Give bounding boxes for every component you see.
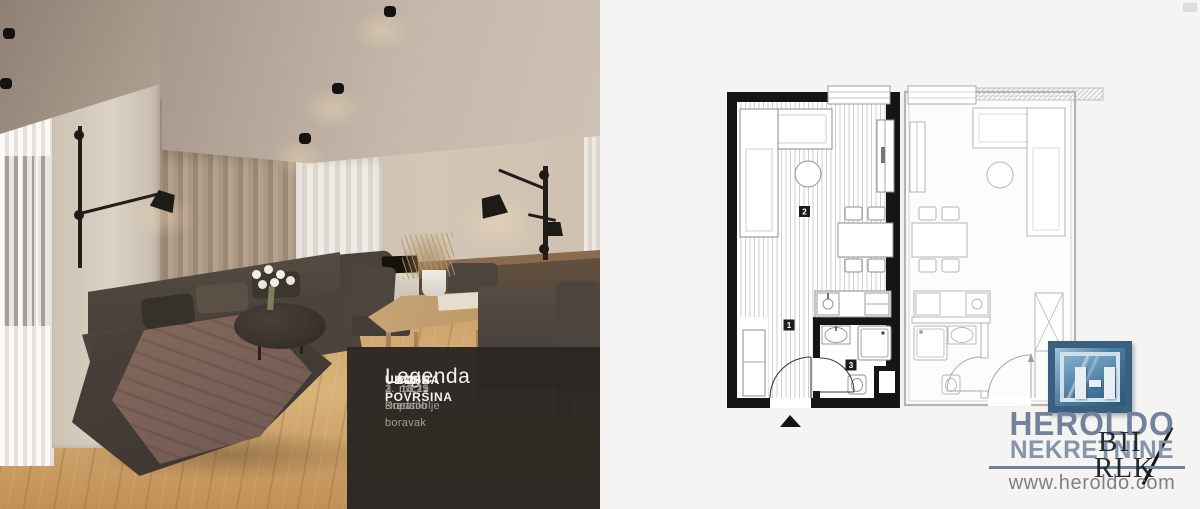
- logo-inner-frame: [1060, 352, 1120, 402]
- ceiling-spotlight: [299, 133, 311, 144]
- room-marker-2: 2: [799, 206, 810, 217]
- wall-lamp-shade: [545, 222, 563, 236]
- agency-tagline: NEKRETNINE: [988, 436, 1196, 465]
- sofa-pillow: [195, 282, 249, 314]
- logo-h-bar: [1104, 367, 1115, 399]
- interior-photo: Legenda 1. Predsoblje 3,25 m2 2. Dnevni …: [0, 0, 600, 509]
- logo-h-bar: [1089, 380, 1101, 387]
- ceiling-spotlight: [0, 78, 12, 89]
- lamp-mount: [539, 244, 549, 254]
- svg-text:1: 1: [787, 321, 792, 330]
- kitchenette: [815, 291, 891, 317]
- room-marker-3: 3: [846, 360, 857, 371]
- svg-text:2: 2: [802, 208, 807, 217]
- coffee-table: [234, 303, 326, 349]
- brand-divider: [989, 466, 1185, 469]
- legend-panel: Legenda 1. Predsoblje 3,25 m2 2. Dnevni …: [347, 347, 600, 509]
- light-glow: [270, 138, 326, 178]
- plant-pot: [422, 270, 446, 296]
- real-estate-listing-graphic: Legenda 1. Predsoblje 3,25 m2 2. Dnevni …: [0, 0, 1200, 509]
- logo-h-bar: [1075, 367, 1086, 399]
- room-marker-1: 1: [784, 320, 795, 331]
- window-sheer-curtain: [0, 116, 54, 466]
- wall-lamp-rail: [78, 126, 82, 268]
- entrance-arrow: [780, 415, 801, 427]
- agency-website-link[interactable]: www.heroldo.com: [986, 472, 1198, 495]
- svg-text:3: 3: [849, 361, 854, 370]
- floor-plan-pane: 1 2 3 BII RLK: [600, 0, 1200, 509]
- ceiling-spotlight: [384, 6, 396, 17]
- left-window: [0, 116, 54, 466]
- watermark-text: RLK: [1094, 452, 1155, 485]
- area-unit: m2: [385, 372, 415, 389]
- installation-shaft: [879, 371, 895, 393]
- light-glow: [352, 10, 412, 52]
- agency-logo-icon: [1048, 341, 1132, 413]
- subject-unit: 1 2 3: [727, 86, 900, 427]
- ceiling-spotlight: [3, 28, 15, 39]
- window: [828, 86, 890, 104]
- plan-dimension-tick: [1183, 3, 1197, 12]
- lamp-mount: [74, 130, 84, 140]
- lamp-mount: [539, 170, 549, 180]
- light-glow: [302, 88, 362, 130]
- ceiling-spotlight: [332, 83, 344, 94]
- flower-bouquet: [252, 270, 261, 279]
